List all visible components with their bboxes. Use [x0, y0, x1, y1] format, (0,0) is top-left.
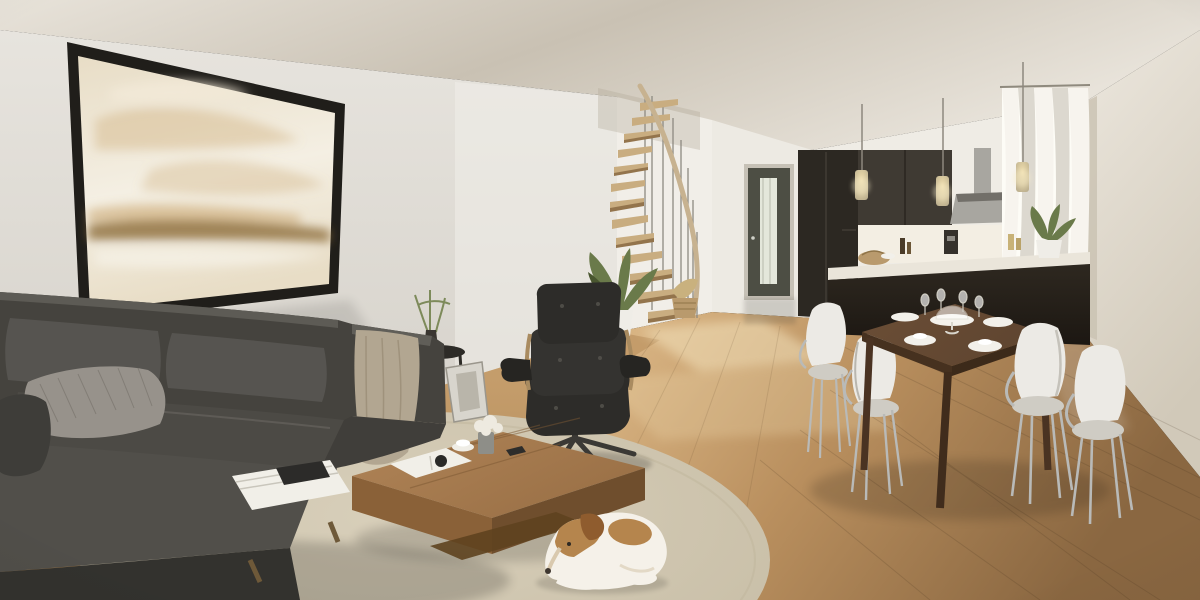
scene-canvas	[0, 0, 1200, 600]
vignette	[0, 0, 1200, 600]
interior-render	[0, 0, 1200, 600]
